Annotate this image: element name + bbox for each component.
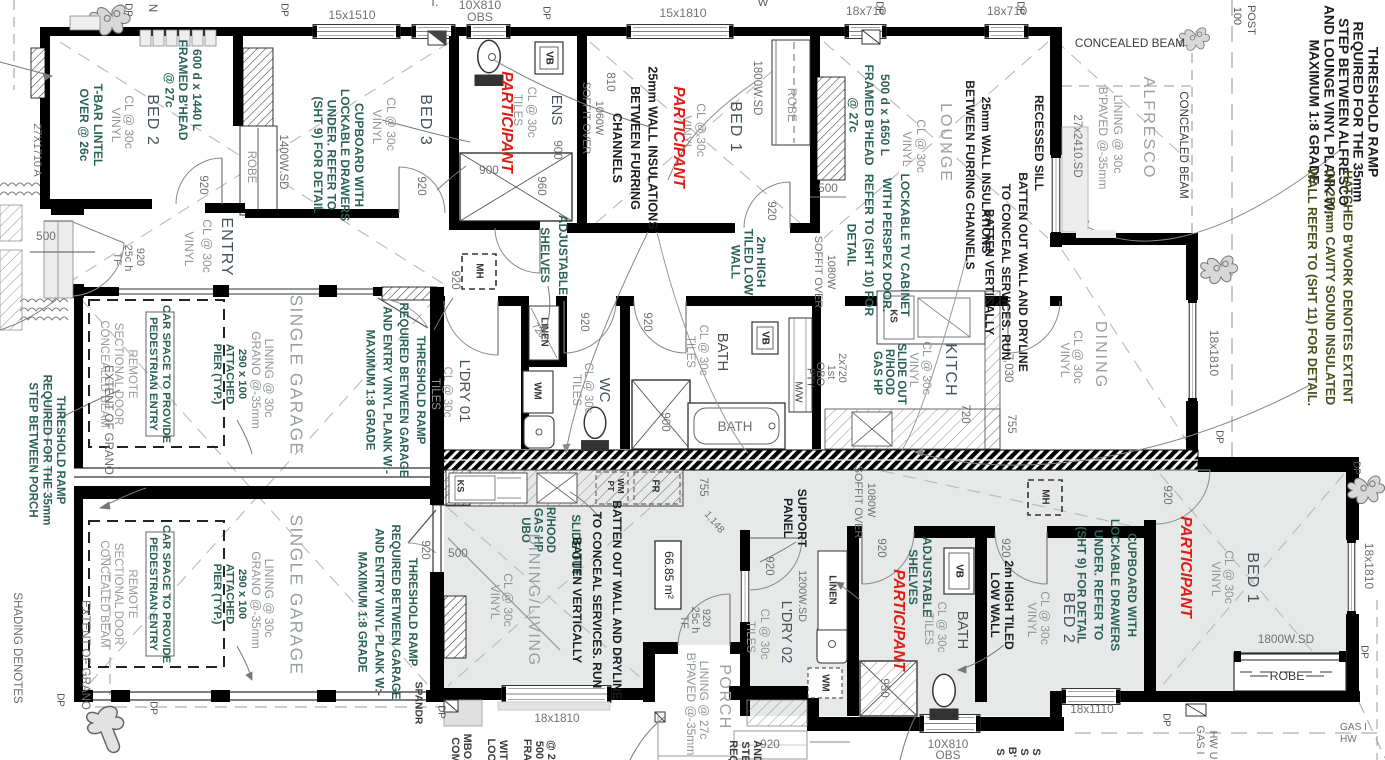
svg-text:M/W: M/W (792, 381, 803, 402)
svg-text:920: 920 (1161, 485, 1173, 504)
svg-text:ATTACHED: ATTACHED (224, 564, 236, 624)
svg-text:GAS I: GAS I (1340, 722, 1367, 733)
svg-text:HATCHED B'WORK DENOTES EXTENT: HATCHED B'WORK DENOTES EXTENT (1341, 170, 1355, 404)
svg-text:TILES: TILES (684, 336, 696, 368)
svg-text:KS: KS (456, 480, 466, 493)
svg-text:900: 900 (551, 140, 563, 159)
svg-text:SOFFIT OVER: SOFFIT OVER (812, 236, 824, 309)
svg-text:R/HOOD: R/HOOD (544, 507, 556, 553)
svg-text:WALL: WALL (729, 245, 743, 280)
svg-text:L'DRY 02: L'DRY 02 (778, 601, 794, 664)
svg-text:BED 1: BED 1 (1244, 552, 1262, 604)
svg-text:@ 27c: @ 27c (163, 72, 177, 108)
svg-text:LINING @ 30c: LINING @ 30c (262, 339, 276, 418)
svg-text:PIER (TYP.): PIER (TYP.) (211, 344, 223, 405)
svg-text:CHANNELS: CHANNELS (610, 113, 624, 183)
svg-text:N: N (146, 4, 158, 12)
svg-text:BETWEEN FURRING: BETWEEN FURRING (628, 86, 642, 210)
svg-text:BED 2: BED 2 (144, 94, 162, 146)
svg-text:@ 27c: @ 27c (846, 97, 860, 133)
svg-text:PORCH: PORCH (716, 664, 734, 730)
svg-text:PARTICIPANT: PARTICIPANT (670, 86, 687, 189)
svg-text:7,030: 7,030 (1002, 354, 1014, 383)
svg-text:950: 950 (878, 678, 890, 697)
svg-text:THRESHOLD RAMP: THRESHOLD RAMP (54, 396, 66, 505)
svg-text:PIER (TYP.): PIER (TYP.) (211, 564, 223, 625)
svg-text:PEDESTRIAN ENTRY: PEDESTRIAN ENTRY (147, 537, 159, 651)
svg-text:SPANDR: SPANDR (412, 682, 423, 725)
svg-text:CL @ 30c: CL @ 30c (914, 119, 928, 173)
svg-text:VINYL: VINYL (1058, 343, 1072, 378)
svg-text:FRAMED B'HEAD: FRAMED B'HEAD (176, 40, 190, 141)
svg-text:WIT: WIT (497, 740, 509, 760)
svg-text:CL @ 30c: CL @ 30c (697, 325, 709, 376)
svg-text:CL @ 30c: CL @ 30c (384, 97, 398, 151)
svg-text:PARTICIPANT: PARTICIPANT (890, 569, 907, 672)
svg-text:R/HOOD: R/HOOD (883, 349, 895, 395)
svg-text:BATH: BATH (718, 419, 753, 434)
svg-text:18x1810: 18x1810 (1207, 330, 1221, 377)
svg-text:ADJUSTABLE: ADJUSTABLE (556, 215, 570, 295)
svg-text:S: S (994, 748, 1006, 755)
svg-text:PT: PT (606, 481, 616, 493)
svg-text:920: 920 (415, 176, 427, 195)
svg-text:BATH: BATH (714, 333, 730, 372)
svg-text:500 d x 1650 L: 500 d x 1650 L (878, 74, 892, 157)
svg-text:27X1710 A: 27X1710 A (31, 123, 43, 177)
svg-text:THRESHOLD RAMP: THRESHOLD RAMP (1365, 47, 1380, 177)
svg-text:OBS: OBS (467, 10, 493, 24)
svg-text:B': B' (1006, 747, 1018, 758)
svg-text:ROBE: ROBE (1270, 669, 1305, 683)
svg-text:CL @ 30c: CL @ 30c (935, 602, 947, 653)
svg-text:ROBE: ROBE (245, 151, 257, 184)
svg-text:920: 920 (641, 312, 653, 331)
svg-text:LOCKABLE TV CABINET: LOCKABLE TV CABINET (898, 173, 912, 317)
svg-text:DP: DP (1214, 430, 1225, 444)
svg-text:DP: DP (279, 3, 290, 17)
svg-text:25mm WALL INSULATIONS: 25mm WALL INSULATIONS (646, 66, 660, 229)
svg-text:VINYL: VINYL (182, 232, 196, 267)
svg-text:BED 3: BED 3 (417, 94, 435, 146)
svg-text:SHELVES: SHELVES (906, 549, 920, 605)
svg-text:18x1810: 18x1810 (534, 711, 580, 725)
svg-text:OBS: OBS (936, 748, 961, 760)
svg-text:CAR SPACE TO PROVIDE: CAR SPACE TO PROVIDE (160, 525, 172, 664)
svg-text:SOFFIT OVER: SOFFIT OVER (852, 466, 864, 539)
svg-text:VINYL: VINYL (900, 132, 914, 167)
svg-text:810: 810 (604, 72, 616, 91)
svg-text:BATTEN OUT WALL AND DRYLINE: BATTEN OUT WALL AND DRYLINE (1016, 172, 1030, 372)
svg-text:WC: WC (596, 378, 612, 403)
svg-text:REFER TO (SHT 10) FOR: REFER TO (SHT 10) FOR (862, 174, 876, 316)
svg-text:MH: MH (474, 263, 485, 278)
svg-text:SOFFIT OVER: SOFFIT OVER (580, 82, 592, 155)
svg-text:900: 900 (659, 412, 671, 431)
svg-text:STE: STE (739, 741, 751, 760)
svg-text:LOUNGE: LOUNGE (937, 103, 955, 183)
svg-text:LINING @ 27c: LINING @ 27c (697, 661, 711, 740)
svg-text:COM: COM (449, 737, 461, 760)
svg-text:W: W (758, 0, 769, 9)
svg-text:HW U: HW U (1207, 730, 1219, 759)
svg-text:GAS I: GAS I (1194, 725, 1206, 754)
svg-text:OF 250mm CAVITY SOUND INSULATE: OF 250mm CAVITY SOUND INSULATED (1323, 169, 1337, 406)
svg-text:ATTACHED: ATTACHED (224, 344, 236, 404)
svg-text:CL @ 30c: CL @ 30c (694, 103, 708, 157)
svg-text:ENTRY: ENTRY (218, 217, 236, 276)
svg-text:MAXIMUM 1:8 GRADE: MAXIMUM 1:8 GRADE (356, 552, 368, 673)
svg-text:SUPPORT: SUPPORT (795, 489, 809, 548)
svg-text:CL @ 30c: CL @ 30c (1038, 591, 1052, 645)
svg-text:1060W: 1060W (593, 101, 605, 136)
svg-text:EXTENT OF GRANO: EXTENT OF GRANO (79, 600, 91, 710)
svg-text:UNDER. REFER TO: UNDER. REFER TO (325, 100, 339, 211)
svg-text:920: 920 (578, 312, 590, 331)
svg-text:OVER @ 26c: OVER @ 26c (77, 89, 91, 162)
svg-text:T-BAR LINTEL: T-BAR LINTEL (91, 84, 105, 167)
svg-text:ADJUSTABLE: ADJUSTABLE (920, 537, 934, 617)
svg-text:CL @ 30c: CL @ 30c (200, 219, 214, 273)
svg-text:BED 1: BED 1 (727, 101, 745, 153)
svg-text:CL @ 30c: CL @ 30c (758, 609, 770, 660)
svg-text:SHADING DENOTES: SHADING DENOTES (11, 592, 23, 704)
svg-text:THRESHOLD RAMP: THRESHOLD RAMP (406, 558, 418, 667)
svg-text:B'PAVED @-35mm: B'PAVED @-35mm (684, 653, 698, 756)
svg-text:FR: FR (650, 479, 661, 492)
svg-text:BATTEN OUT WALL AND DRYLINE: BATTEN OUT WALL AND DRYLINE (610, 500, 624, 700)
svg-text:L'DRY 01: L'DRY 01 (456, 360, 472, 423)
svg-text:TILES: TILES (570, 374, 582, 406)
svg-text:25mm WALL INSULATIONS: 25mm WALL INSULATIONS (979, 97, 993, 254)
svg-text:PTY: PTY (804, 368, 815, 388)
svg-text:500: 500 (818, 181, 838, 195)
svg-text:920: 920 (449, 270, 461, 289)
svg-text:UNDER. REFER TO: UNDER. REFER TO (1091, 530, 1105, 641)
svg-text:CONCEALED BEAM: CONCEALED BEAM (1075, 36, 1185, 50)
svg-text:TF: TF (678, 615, 690, 629)
svg-text:ENS: ENS (548, 95, 564, 126)
svg-text:15x1810: 15x1810 (659, 6, 706, 20)
svg-text:LINING @ 30c: LINING @ 30c (1111, 95, 1125, 174)
svg-text:LINEN: LINEN (827, 575, 838, 604)
svg-text:REQUIRED FOR THE 35mm: REQUIRED FOR THE 35mm (40, 375, 52, 526)
svg-text:CL @ 30c: CL @ 30c (582, 363, 594, 414)
svg-text:WM: WM (820, 674, 831, 691)
svg-text:DP: DP (541, 6, 552, 20)
svg-text:MAXIMUM 1:8 GRADE: MAXIMUM 1:8 GRADE (364, 330, 376, 451)
svg-text:TF: TF (111, 252, 123, 266)
svg-text:2m HIGH TILED: 2m HIGH TILED (1002, 560, 1016, 650)
svg-text:DP: DP (436, 705, 447, 719)
svg-text:WM: WM (532, 382, 543, 399)
svg-text:755: 755 (1005, 414, 1017, 433)
svg-text:CL @ 30c: CL @ 30c (441, 367, 453, 418)
svg-text:FRAMED B'HEAD: FRAMED B'HEAD (862, 65, 876, 166)
svg-text:(SHT 9) FOR DETAIL: (SHT 9) FOR DETAIL (1075, 526, 1089, 644)
svg-text:920: 920 (763, 556, 775, 575)
svg-text:KITCH: KITCH (942, 343, 960, 396)
svg-text:@ 2: @ 2 (545, 740, 557, 760)
svg-text:BATTEN VERTICALLY: BATTEN VERTICALLY (570, 537, 584, 663)
svg-text:960: 960 (535, 176, 547, 195)
svg-text:PARTICIPANT: PARTICIPANT (498, 71, 515, 174)
svg-text:900: 900 (479, 163, 499, 177)
svg-text:VB: VB (954, 564, 965, 578)
svg-text:LOCKABLE DRAWERS: LOCKABLE DRAWERS (1108, 519, 1122, 651)
svg-text:CL @ 30c: CL @ 30c (920, 341, 934, 395)
svg-text:SLIDE OUT: SLIDE OUT (895, 343, 907, 404)
svg-text:DP: DP (123, 3, 134, 17)
svg-text:DP: DP (1359, 645, 1370, 659)
svg-text:755: 755 (697, 477, 709, 496)
svg-text:SHELVES: SHELVES (538, 227, 552, 283)
svg-text:RECESSED SILL: RECESSED SILL (1032, 95, 1046, 192)
svg-text:VB: VB (760, 331, 771, 345)
svg-text:TO CONCEAL SERVICES. RUN: TO CONCEAL SERVICES. RUN (590, 512, 604, 689)
svg-text:DP: DP (55, 693, 66, 707)
svg-text:VINYL: VINYL (370, 110, 384, 145)
svg-text:WITH PERSPEX DOOR.: WITH PERSPEX DOOR. (880, 178, 894, 312)
svg-text:(SHT 9) FOR DETAIL: (SHT 9) FOR DETAIL (311, 96, 325, 214)
svg-text:HW: HW (1340, 734, 1357, 745)
svg-text:DP: DP (874, 1, 885, 15)
svg-text:WALL REFER TO (SHT 11) FOR DET: WALL REFER TO (SHT 11) FOR DETAIL. (1305, 168, 1319, 406)
svg-text:MBOX: MBOX (461, 734, 473, 760)
svg-text:290 x 100: 290 x 100 (236, 349, 248, 399)
svg-text:100: 100 (1231, 7, 1243, 25)
svg-text:VINYL: VINYL (488, 585, 502, 620)
svg-text:18x1810: 18x1810 (1362, 543, 1376, 590)
svg-text:VINYL: VINYL (1025, 603, 1039, 638)
svg-text:500: 500 (448, 546, 468, 560)
svg-text:TO CONCEAL SERVICES. RUN: TO CONCEAL SERVICES. RUN (999, 184, 1013, 361)
svg-text:920: 920 (419, 540, 431, 559)
svg-text:MAXIMUM 1:8 GRADE: MAXIMUM 1:8 GRADE (1307, 40, 1322, 185)
svg-text:920: 920 (999, 538, 1011, 557)
svg-text:CL @ 30c: CL @ 30c (525, 87, 537, 138)
svg-text:DINING/LIVING: DINING/LIVING (525, 533, 543, 666)
svg-text:600 d x 1440 L: 600 d x 1440 L (190, 49, 204, 132)
svg-text:DETAIL: DETAIL (844, 224, 858, 267)
svg-text:BATH: BATH (954, 611, 970, 650)
svg-text:AND ENTRY VINYL PLANK W:-: AND ENTRY VINYL PLANK W:- (380, 306, 392, 474)
svg-text:CUPBOARD WITH: CUPBOARD WITH (352, 103, 366, 207)
svg-text:720: 720 (959, 404, 971, 423)
svg-text:290 x 100: 290 x 100 (236, 569, 248, 619)
svg-text:1800W.SD: 1800W.SD (1258, 632, 1314, 646)
svg-text:1080W: 1080W (825, 255, 837, 290)
svg-text:CONCEALED BEAM: CONCEALED BEAM (1177, 91, 1189, 198)
svg-text:REQ: REQ (727, 740, 739, 760)
svg-text:TILES: TILES (429, 378, 441, 410)
svg-text:ROBE: ROBE (785, 88, 799, 122)
svg-text:MH: MH (1040, 489, 1051, 504)
svg-text:EXTENT OF GRANO: EXTENT OF GRANO (102, 365, 114, 475)
svg-text:CL @ 30c: CL @ 30c (501, 573, 515, 627)
svg-text:1800W.SD: 1800W.SD (751, 61, 763, 116)
svg-text:CONCEALED BEAM: CONCEALED BEAM (98, 540, 110, 647)
svg-text:BETWEEN FURRING CHANNELS: BETWEEN FURRING CHANNELS (963, 80, 977, 269)
svg-text:VINYL: VINYL (1209, 562, 1223, 597)
svg-text:DINING: DINING (1092, 321, 1110, 389)
svg-text:CAR SPACE TO PROVIDE: CAR SPACE TO PROVIDE (160, 305, 172, 444)
svg-text:VINYL: VINYL (109, 108, 123, 143)
svg-text:CL @ 30c: CL @ 30c (122, 95, 136, 149)
svg-text:GRANO @-35mm: GRANO @-35mm (249, 331, 263, 429)
svg-text:SINGLE GARAGE: SINGLE GARAGE (287, 295, 307, 456)
svg-text:POST: POST (1245, 5, 1257, 35)
svg-text:WM: WM (616, 478, 626, 493)
svg-text:PANEL: PANEL (781, 498, 795, 539)
svg-text:REQUIRED BETWEEN GARAGE: REQUIRED BETWEEN GARAGE (397, 302, 409, 477)
svg-text:LOW WALL: LOW WALL (988, 572, 1002, 638)
svg-text:PEDESTRIAN ENTRY: PEDESTRIAN ENTRY (147, 317, 159, 431)
svg-text:S: S (1018, 748, 1030, 755)
svg-text:15x1510: 15x1510 (328, 8, 375, 22)
svg-text:18x1110: 18x1110 (1070, 702, 1114, 716)
svg-text:LOCKABLE DRAWERS: LOCKABLE DRAWERS (338, 89, 352, 221)
svg-text:920: 920 (134, 248, 146, 266)
svg-text:DP: DP (148, 701, 159, 715)
svg-text:SECTIONAL DOOR: SECTIONAL DOOR (112, 543, 124, 645)
svg-text:PARTICIPANT: PARTICIPANT (1177, 516, 1194, 619)
svg-text:TILES: TILES (744, 621, 756, 653)
svg-text:VINYL: VINYL (907, 353, 921, 388)
svg-text:66.85 m²: 66.85 m² (662, 551, 676, 599)
svg-text:B'PAVED @-35mm: B'PAVED @-35mm (1096, 87, 1110, 190)
svg-text:DP: DP (1351, 461, 1362, 475)
svg-text:DP: DP (1161, 713, 1172, 727)
svg-text:FRA: FRA (521, 739, 533, 760)
svg-text:REQUIRED BETWEEN GARAGE: REQUIRED BETWEEN GARAGE (389, 524, 401, 699)
svg-text:GRANO @-35mm: GRANO @-35mm (249, 551, 263, 649)
svg-text:ALFRESCO: ALFRESCO (1140, 77, 1158, 180)
svg-text:DP: DP (1015, 1, 1026, 15)
svg-text:S: S (1030, 748, 1042, 755)
svg-text:920: 920 (875, 538, 887, 557)
svg-text:LINING @ 30c: LINING @ 30c (262, 559, 276, 638)
svg-text:LOC: LOC (485, 739, 497, 760)
svg-text:1080W: 1080W (865, 483, 877, 518)
svg-text:920: 920 (765, 201, 777, 220)
svg-text:T.: T. (430, 0, 439, 9)
svg-text:500: 500 (533, 741, 545, 759)
svg-text:CUPBOARD WITH: CUPBOARD WITH (1125, 533, 1139, 637)
svg-text:AND: AND (751, 740, 763, 760)
svg-text:CL @ 30c: CL @ 30c (1222, 550, 1236, 604)
svg-text:REMOTE: REMOTE (126, 349, 138, 399)
svg-text:REMOTE: REMOTE (126, 569, 138, 619)
svg-text:1200W.SD: 1200W.SD (796, 570, 808, 622)
svg-text:GAS HP: GAS HP (871, 351, 883, 395)
svg-text:CL @ 30c: CL @ 30c (1071, 330, 1085, 384)
svg-text:VB: VB (544, 51, 555, 65)
svg-text:AND ENTRY VINYL PLANK W:-: AND ENTRY VINYL PLANK W:- (372, 528, 384, 696)
svg-text:500: 500 (36, 229, 56, 243)
svg-text:TILES: TILES (922, 613, 934, 645)
svg-text:920: 920 (197, 175, 209, 194)
svg-text:27x2410.SD: 27x2410.SD (1071, 114, 1083, 177)
svg-text:1400W.SD: 1400W.SD (277, 135, 289, 190)
svg-text:SINGLE GARAGE: SINGLE GARAGE (287, 515, 307, 676)
svg-text:STEP BETWEEN PORCH: STEP BETWEEN PORCH (27, 382, 39, 517)
svg-text:THRESHOLD RAMP: THRESHOLD RAMP (414, 336, 426, 445)
